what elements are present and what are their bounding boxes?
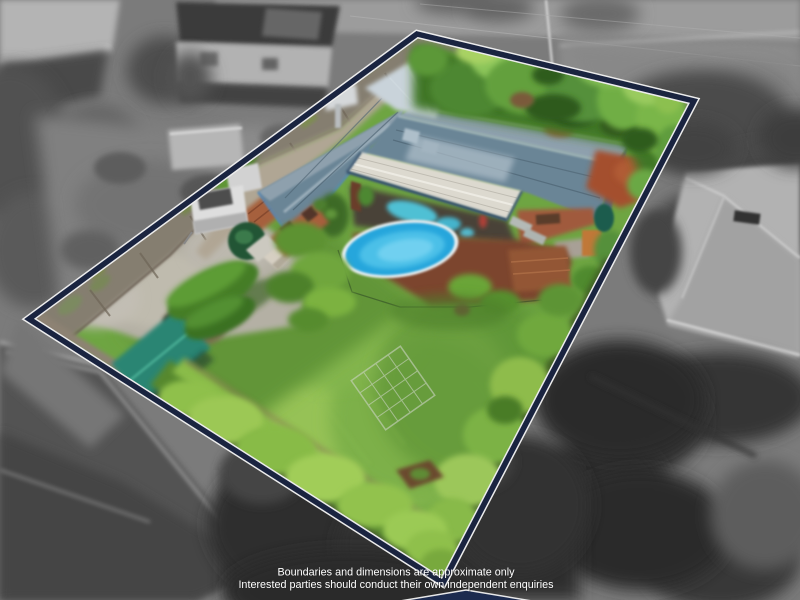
svg-text:Boundaries and dimensions are: Boundaries and dimensions are approximat… — [277, 567, 515, 579]
svg-text:Interested parties should cond: Interested parties should conduct their … — [238, 579, 554, 591]
